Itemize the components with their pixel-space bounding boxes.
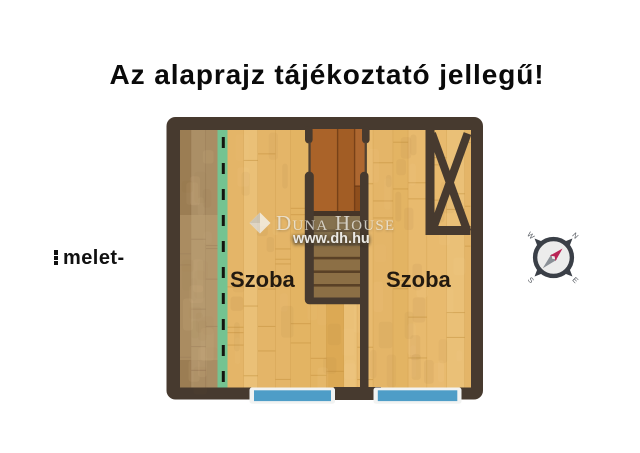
svg-text:E: E xyxy=(571,275,581,285)
svg-text:W: W xyxy=(525,230,536,241)
svg-text:S: S xyxy=(526,275,536,285)
